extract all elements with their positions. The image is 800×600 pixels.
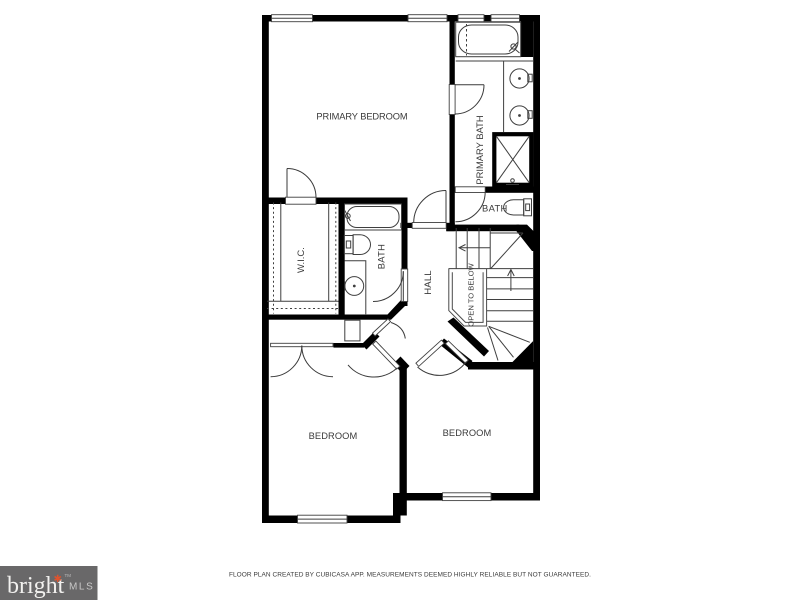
svg-text:MLS: MLS: [69, 582, 94, 593]
svg-text:BEDROOM: BEDROOM: [309, 431, 358, 441]
svg-text:BATH: BATH: [482, 202, 508, 213]
svg-text:PRIMARY BATH: PRIMARY BATH: [474, 115, 485, 184]
svg-text:BEDROOM: BEDROOM: [443, 428, 492, 438]
svg-text:W.I.C.: W.I.C.: [296, 247, 307, 273]
svg-text:BATH: BATH: [376, 244, 387, 270]
svg-text:FLOOR PLAN CREATED BY CUBICASA: FLOOR PLAN CREATED BY CUBICASA APP. MEAS…: [229, 572, 591, 579]
svg-text:TM: TM: [65, 573, 72, 578]
svg-text:PRIMARY BEDROOM: PRIMARY BEDROOM: [316, 112, 407, 122]
svg-text:✱: ✱: [54, 574, 62, 585]
svg-text:OPEN TO BELOW: OPEN TO BELOW: [467, 262, 476, 326]
svg-text:HALL: HALL: [423, 270, 434, 295]
